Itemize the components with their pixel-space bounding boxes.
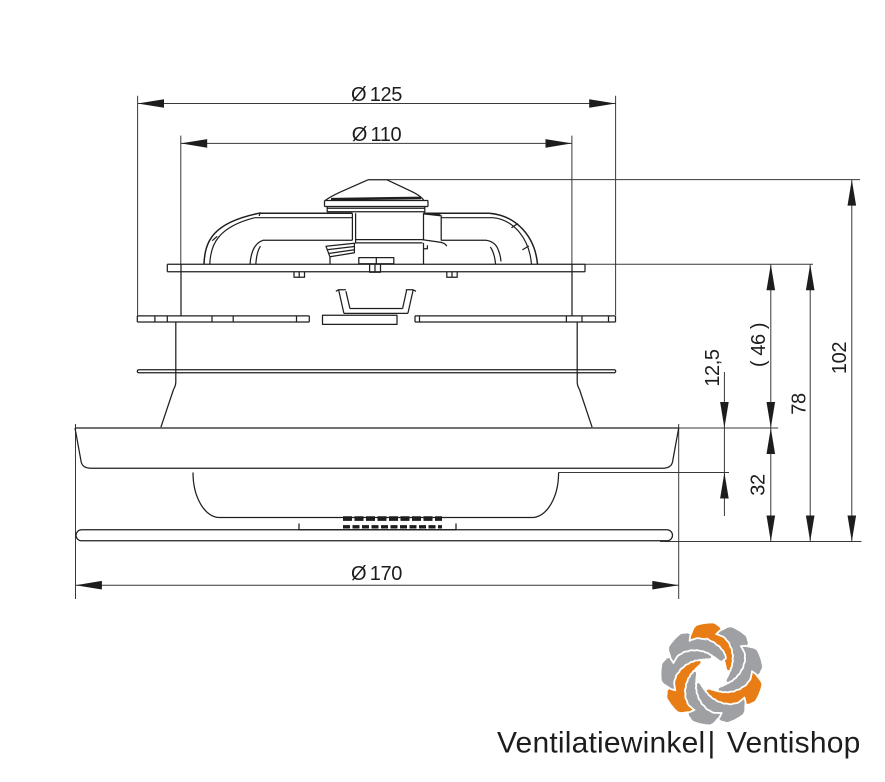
svg-text:Ø 125: Ø 125 [351,84,402,106]
svg-text:12,5: 12,5 [702,349,724,387]
svg-text:Ventishop: Ventishop [727,727,861,760]
svg-text:78: 78 [789,393,811,415]
svg-text:|: | [708,727,716,760]
svg-text:102: 102 [829,342,851,374]
svg-text:( 46 ): ( 46 ) [748,323,770,367]
svg-text:Ø 110: Ø 110 [352,124,402,146]
svg-text:32: 32 [748,474,770,496]
svg-text:Ventilatiewinkel: Ventilatiewinkel [497,727,705,760]
svg-text:Ø 170: Ø 170 [351,563,402,585]
